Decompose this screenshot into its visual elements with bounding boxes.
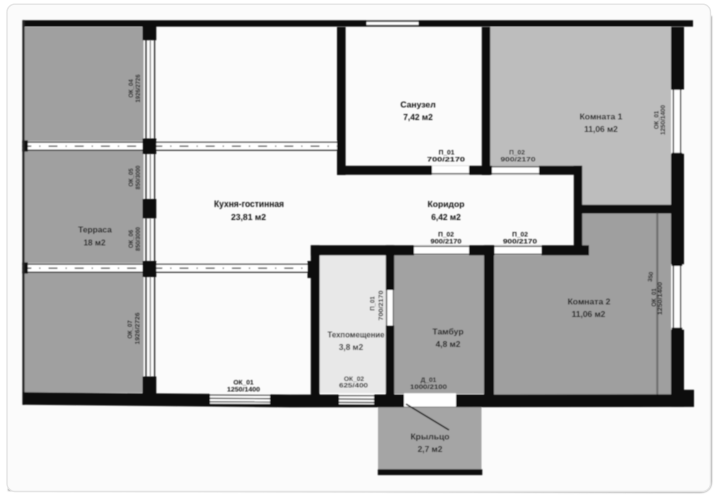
svg-text:Кухня-гостинная: Кухня-гостинная: [214, 199, 284, 209]
svg-text:П_01: П_01: [439, 150, 455, 157]
svg-text:ОК_05: ОК_05: [129, 168, 135, 187]
svg-text:ОК_01: ОК_01: [655, 110, 661, 129]
svg-text:Комната 1: Комната 1: [580, 112, 623, 122]
svg-text:Коридор: Коридор: [428, 199, 465, 209]
svg-text:1250/1400: 1250/1400: [661, 104, 667, 135]
svg-text:11,06 м2: 11,06 м2: [572, 309, 606, 319]
svg-text:Санузел: Санузел: [400, 100, 435, 110]
svg-text:1926/2726: 1926/2726: [136, 74, 142, 103]
svg-text:1000/2100: 1000/2100: [410, 384, 447, 391]
svg-text:Д_01: Д_01: [421, 377, 437, 384]
svg-text:3,8 м2: 3,8 м2: [339, 343, 364, 352]
svg-text:Тамбур: Тамбур: [432, 327, 463, 337]
svg-text:6,42 м2: 6,42 м2: [431, 212, 461, 222]
svg-text:П_02: П_02: [509, 150, 525, 157]
svg-text:ОК_04: ОК_04: [129, 79, 135, 98]
svg-text:625/400: 625/400: [339, 383, 368, 390]
svg-text:23,81 м2: 23,81 м2: [231, 212, 266, 222]
svg-text:4,8 м2: 4,8 м2: [436, 339, 461, 349]
svg-text:900/2170: 900/2170: [431, 238, 462, 245]
svg-text:11,06 м2: 11,06 м2: [584, 124, 618, 134]
svg-text:Крыльцо: Крыльцо: [410, 432, 449, 442]
svg-text:900/2170: 900/2170: [501, 157, 536, 164]
svg-text:Комната 2: Комната 2: [568, 297, 611, 307]
svg-text:П_01: П_01: [370, 296, 376, 311]
svg-text:ОК_07: ОК_07: [128, 320, 134, 339]
svg-text:7,42 м2: 7,42 м2: [403, 112, 433, 122]
svg-text:850/3000: 850/3000: [136, 165, 142, 190]
svg-text:Терраса: Терраса: [78, 225, 112, 235]
svg-text:1926/2726: 1926/2726: [135, 312, 141, 345]
svg-text:Техпомещение: Техпомещение: [328, 330, 385, 340]
svg-text:700/2170: 700/2170: [427, 157, 465, 164]
svg-text:900/2170: 900/2170: [503, 238, 537, 245]
svg-text:1250/1400: 1250/1400: [227, 386, 260, 393]
svg-text:2,7 м2: 2,7 м2: [418, 444, 443, 454]
svg-text:850/3000: 850/3000: [136, 226, 142, 251]
svg-text:18 м2: 18 м2: [84, 239, 106, 248]
svg-text:ОК_06: ОК_06: [129, 229, 135, 248]
svg-text:700/2170: 700/2170: [379, 290, 385, 321]
svg-text:ОК_01: ОК_01: [233, 379, 253, 386]
svg-text:1250/1400: 1250/1400: [658, 281, 664, 315]
